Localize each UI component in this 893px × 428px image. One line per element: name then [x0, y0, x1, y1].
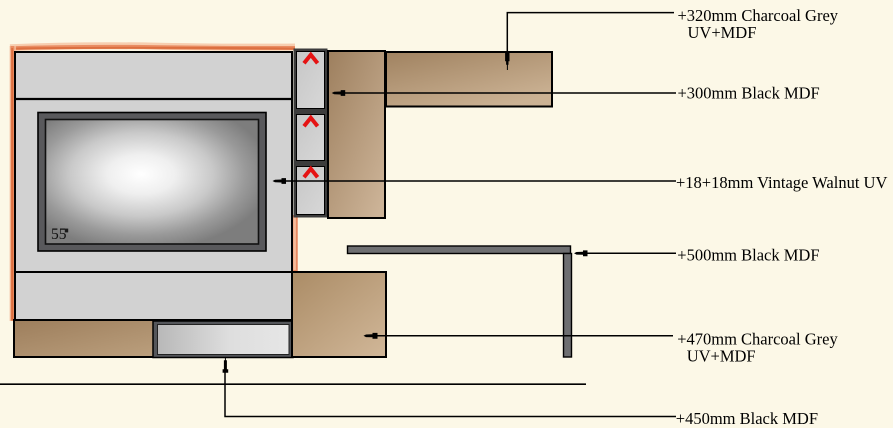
svg-text:UV+MDF: UV+MDF — [688, 23, 757, 42]
svg-text:+450mm Black MDF: +450mm Black MDF — [676, 409, 818, 428]
svg-text:+300mm Black MDF: +300mm Black MDF — [678, 83, 820, 102]
svg-text:UV+MDF: UV+MDF — [687, 346, 756, 365]
svg-text:+18+18mm Vintage Walnut UV: +18+18mm Vintage Walnut UV — [676, 173, 887, 192]
svg-text:55: 55 — [51, 226, 67, 243]
svg-text:+500mm Black MDF: +500mm Black MDF — [677, 246, 819, 265]
